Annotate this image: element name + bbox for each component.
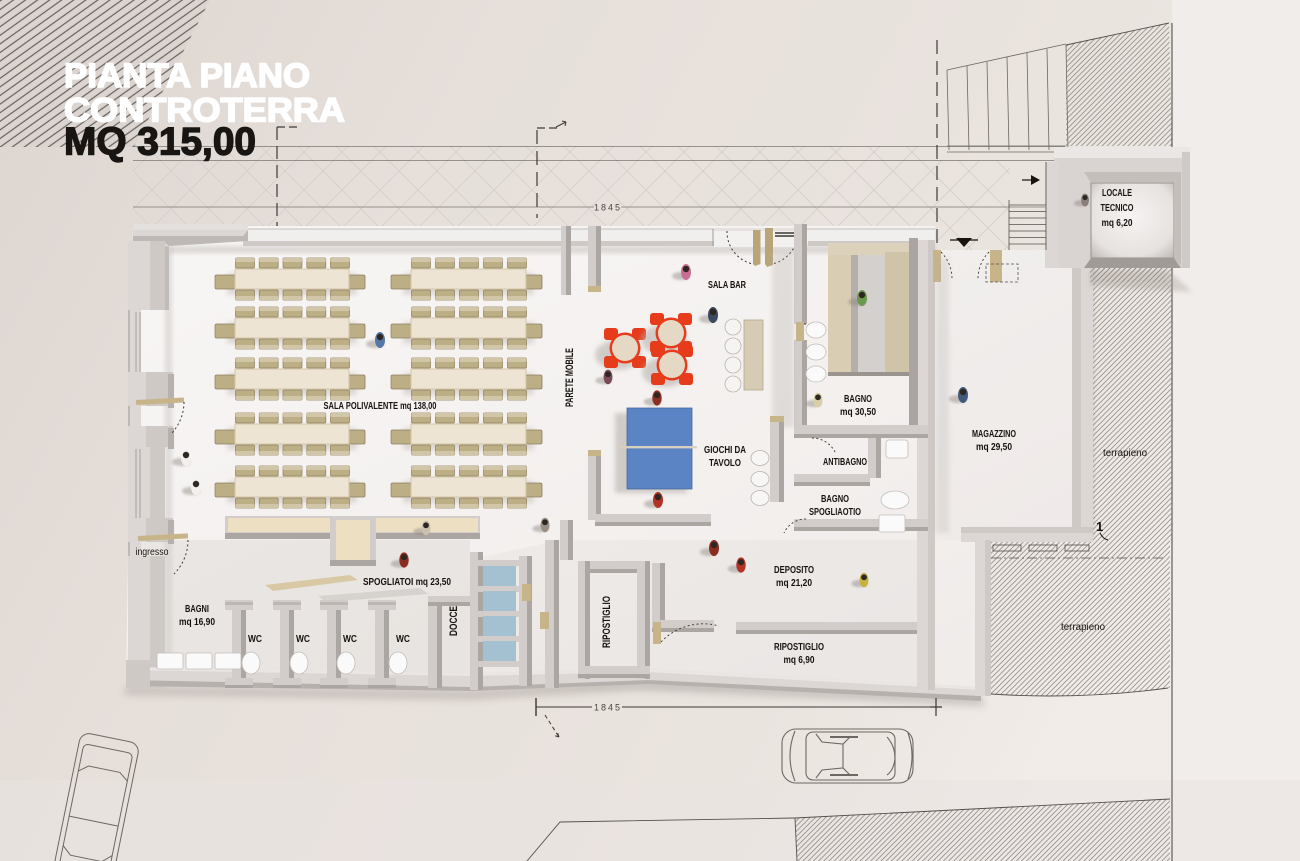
svg-text:mq 16,90: mq 16,90 xyxy=(179,616,215,628)
svg-text:1845: 1845 xyxy=(594,203,620,213)
svg-text:DEPOSITO: DEPOSITO xyxy=(774,564,814,576)
svg-text:PARETE MOBILE: PARETE MOBILE xyxy=(564,348,576,407)
svg-text:LOCALE: LOCALE xyxy=(1102,187,1132,199)
svg-text:mq 6,90: mq 6,90 xyxy=(784,654,815,666)
svg-text:ingresso: ingresso xyxy=(136,547,169,558)
svg-text:BAGNI: BAGNI xyxy=(185,603,209,615)
svg-text:WC: WC xyxy=(396,633,410,645)
svg-text:WC: WC xyxy=(248,633,262,645)
svg-text:terrapieno: terrapieno xyxy=(1103,448,1147,459)
svg-text:mq 30,50: mq 30,50 xyxy=(840,406,876,418)
svg-text:mq 6,20: mq 6,20 xyxy=(1102,217,1133,229)
svg-text:MQ 315,00: MQ 315,00 xyxy=(64,121,256,164)
svg-text:BAGNO: BAGNO xyxy=(821,493,849,505)
svg-text:TAVOLO: TAVOLO xyxy=(709,457,741,469)
svg-text:1845: 1845 xyxy=(594,703,620,713)
svg-text:PIANTA PIANO: PIANTA PIANO xyxy=(64,57,310,95)
svg-text:mq 21,20: mq 21,20 xyxy=(776,577,812,589)
svg-text:1: 1 xyxy=(1096,519,1103,534)
svg-text:TECNICO: TECNICO xyxy=(1101,202,1134,214)
svg-text:mq 29,50: mq 29,50 xyxy=(976,441,1012,453)
svg-text:GIOCHI DA: GIOCHI DA xyxy=(704,444,746,456)
svg-text:WC: WC xyxy=(296,633,310,645)
svg-text:SALA POLIVALENTE mq 138,00: SALA POLIVALENTE mq 138,00 xyxy=(324,401,437,412)
svg-text:WC: WC xyxy=(343,633,357,645)
svg-text:RIPOSTIGLIO: RIPOSTIGLIO xyxy=(774,641,824,653)
svg-text:RIPOSTIGLIO: RIPOSTIGLIO xyxy=(601,596,613,648)
svg-text:ANTIBAGNO: ANTIBAGNO xyxy=(823,456,867,468)
svg-text:SPOGLIAOTIO: SPOGLIAOTIO xyxy=(809,506,861,518)
svg-text:SPOGLIATOI mq 23,50: SPOGLIATOI mq 23,50 xyxy=(363,576,451,588)
svg-text:MAGAZZINO: MAGAZZINO xyxy=(972,428,1016,440)
svg-text:SALA BAR: SALA BAR xyxy=(708,279,746,291)
svg-text:terrapieno: terrapieno xyxy=(1061,622,1105,633)
svg-text:DOCCE: DOCCE xyxy=(448,606,460,636)
svg-text:BAGNO: BAGNO xyxy=(844,393,872,405)
